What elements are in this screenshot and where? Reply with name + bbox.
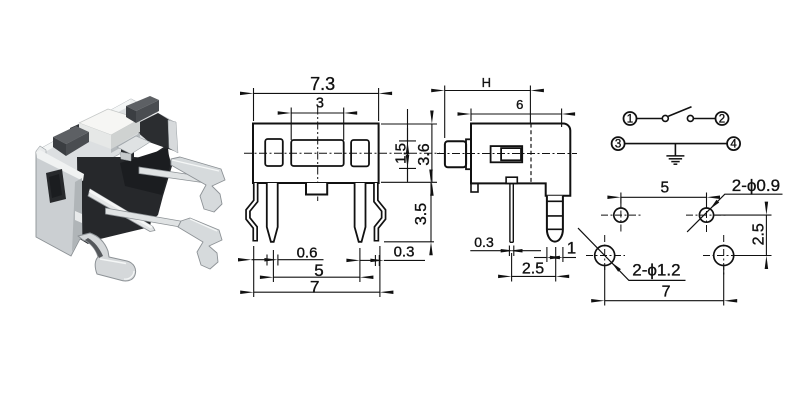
svg-text:3: 3: [316, 96, 324, 112]
svg-text:3.6: 3.6: [416, 143, 433, 165]
svg-text:1: 1: [567, 239, 576, 258]
svg-text:2: 2: [719, 114, 725, 126]
svg-text:2.5: 2.5: [751, 223, 768, 245]
svg-text:6: 6: [516, 97, 523, 112]
svg-text:7.3: 7.3: [310, 74, 335, 94]
svg-text:1: 1: [627, 114, 633, 126]
svg-text:7: 7: [310, 278, 319, 297]
svg-text:0.3: 0.3: [394, 243, 415, 260]
svg-text:1.5: 1.5: [392, 143, 409, 164]
svg-text:H: H: [482, 75, 491, 90]
svg-text:5: 5: [660, 180, 669, 197]
svg-text:0.3: 0.3: [474, 234, 494, 250]
svg-text:4: 4: [730, 139, 737, 151]
svg-text:3.5: 3.5: [413, 203, 430, 225]
svg-text:2.5: 2.5: [522, 261, 544, 278]
svg-text:2-ϕ0.9: 2-ϕ0.9: [732, 176, 780, 195]
svg-text:7: 7: [662, 284, 671, 301]
svg-text:0.6: 0.6: [297, 244, 318, 261]
svg-text:3: 3: [615, 139, 621, 151]
svg-text:2-ϕ1.2: 2-ϕ1.2: [632, 261, 680, 280]
